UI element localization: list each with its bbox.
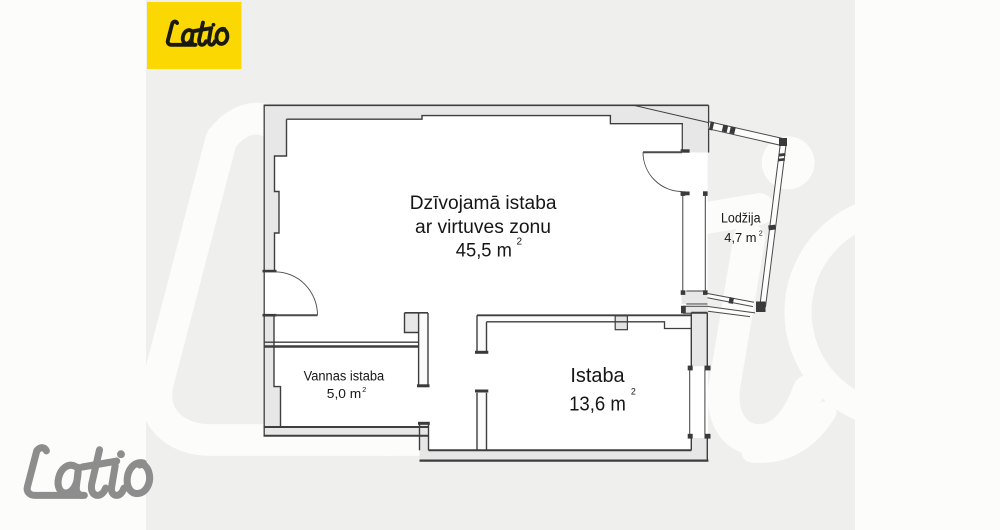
svg-text:2: 2 xyxy=(631,387,636,397)
svg-text:2: 2 xyxy=(759,228,763,237)
svg-text:4,7 m: 4,7 m xyxy=(724,230,756,245)
svg-text:2: 2 xyxy=(517,237,523,248)
svg-text:Lodžija: Lodžija xyxy=(721,210,761,225)
svg-text:Vannas istaba: Vannas istaba xyxy=(304,368,385,384)
svg-text:13,6 m: 13,6 m xyxy=(569,394,626,416)
svg-text:2: 2 xyxy=(362,385,366,394)
svg-text:45,5 m: 45,5 m xyxy=(456,241,512,262)
svg-text:ar virtuves zonu: ar virtuves zonu xyxy=(415,217,551,238)
svg-text:5,0 m: 5,0 m xyxy=(327,386,361,401)
svg-text:Istaba: Istaba xyxy=(570,365,625,387)
svg-text:Dzīvojamā istaba: Dzīvojamā istaba xyxy=(410,193,557,214)
